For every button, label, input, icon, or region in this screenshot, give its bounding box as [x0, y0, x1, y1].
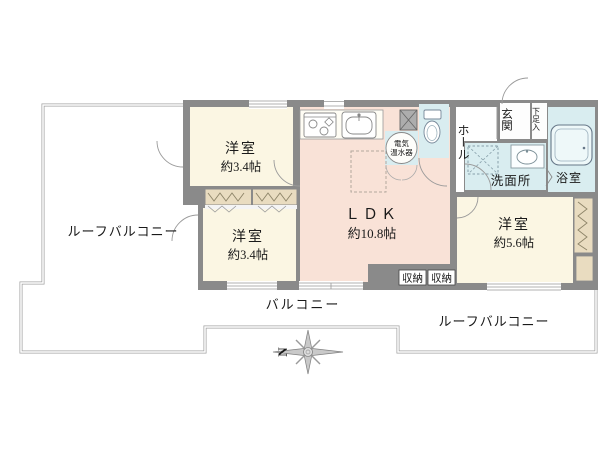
- kitchen-sink-icon: [342, 112, 376, 138]
- bedroom-right-name: 洋室: [498, 216, 530, 233]
- window-bedroom-top: [249, 99, 287, 109]
- bedroom-top-name: 洋室: [225, 140, 257, 157]
- compass-north-label: N: [275, 347, 290, 357]
- water-heater-label-line2: 温水器: [390, 147, 413, 157]
- storage-left-label: 収納: [402, 272, 423, 285]
- shoe-cabinet-label: 下足入: [532, 107, 541, 131]
- window-kitchen-vent: [324, 99, 344, 109]
- kitchen-counter: [300, 110, 383, 139]
- closet-right: [574, 198, 593, 281]
- bathroom-label: 浴室: [556, 170, 582, 185]
- compass: N: [273, 330, 343, 374]
- floor-plan-canvas: N ルーフバルコニー ルーフバルコニー バルコニー 洋室 約3.4帖 洋室 約3…: [0, 0, 600, 450]
- stove-icon: [304, 113, 336, 137]
- window-bedroom-right: [487, 282, 561, 292]
- washroom-sink-icon: [511, 145, 544, 168]
- window-bedroom-bottom: [227, 281, 277, 291]
- bedroom-top-size: 約3.4帖: [221, 159, 262, 174]
- bedroom-bottom-name: 洋室: [232, 228, 264, 245]
- roof-balcony-left-label: ルーフバルコニー: [68, 224, 179, 239]
- hall-label: ホール: [456, 124, 470, 160]
- closet-top: [205, 189, 297, 212]
- toilet-icon: [424, 110, 441, 143]
- storage-right-label: 収納: [431, 272, 452, 285]
- ldk-size: 約10.8帖: [348, 226, 397, 241]
- bedroom-right-size: 約5.6帖: [494, 235, 535, 250]
- ldk-name: ＬＤＫ: [345, 207, 399, 223]
- washroom-label: 洗面所: [491, 174, 532, 188]
- bathtub-icon: [551, 125, 592, 165]
- roof-balcony-right-label: ルーフバルコニー: [439, 314, 550, 329]
- floor-plan: N ルーフバルコニー ルーフバルコニー バルコニー 洋室 約3.4帖 洋室 約3…: [0, 0, 600, 450]
- entrance-label: 玄関: [500, 107, 513, 131]
- bedroom-bottom-size: 約3.4帖: [228, 247, 269, 262]
- pipe-shaft: [400, 110, 417, 130]
- balcony-label: バルコニー: [266, 297, 341, 312]
- water-heater-label-line1: 電気: [394, 138, 409, 148]
- window-ldk-slider: [299, 281, 363, 291]
